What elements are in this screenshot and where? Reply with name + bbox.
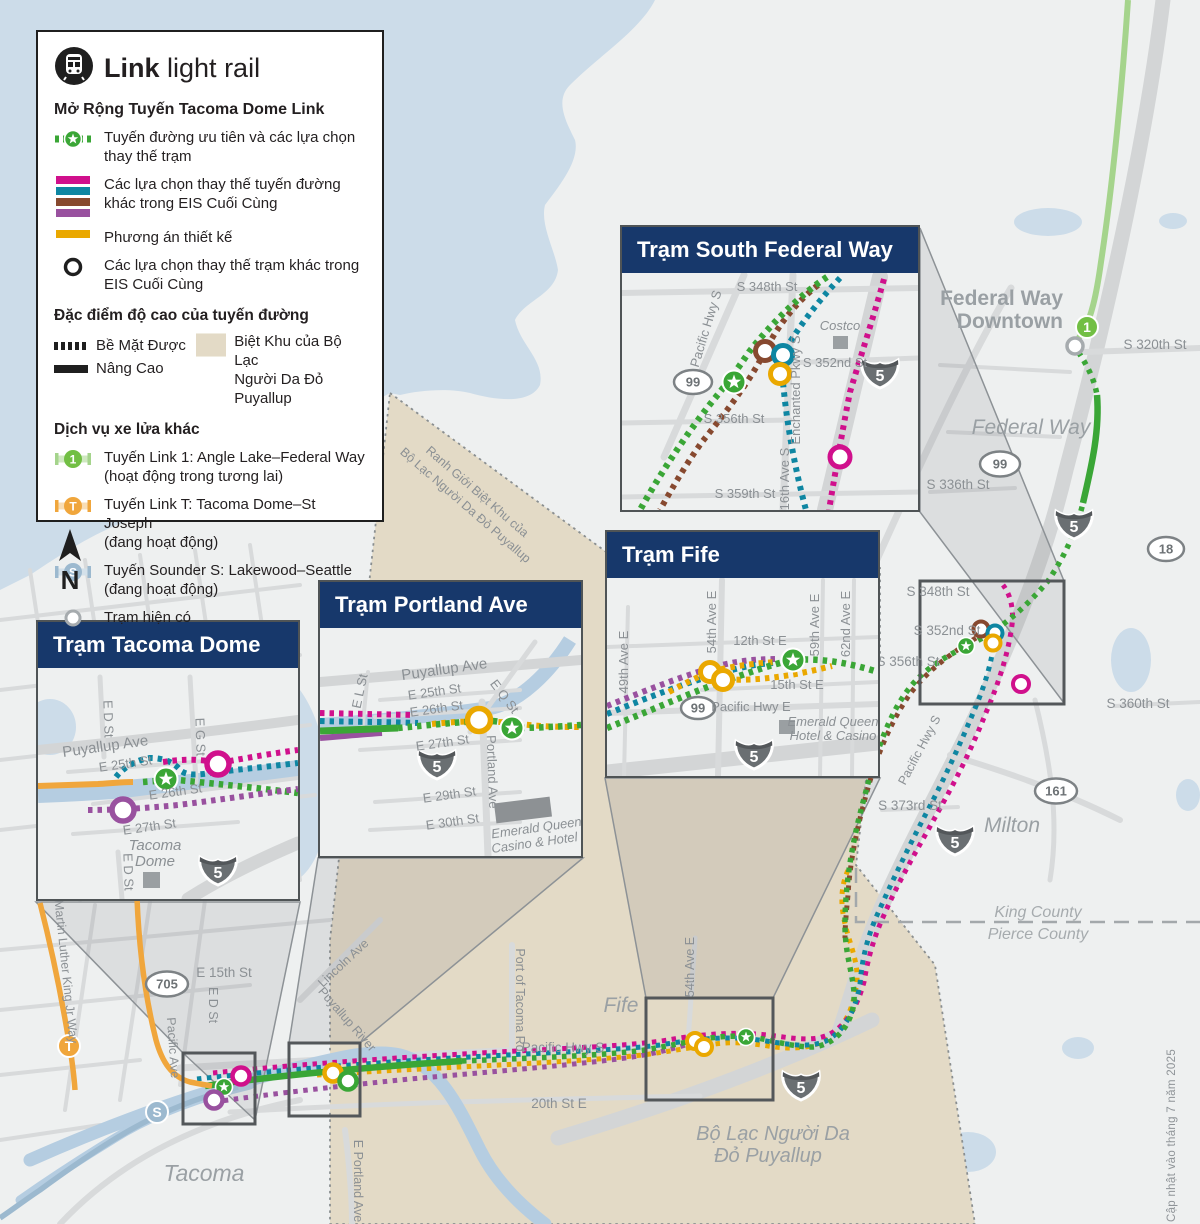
svg-text:S 320th St: S 320th St: [1123, 337, 1186, 352]
svg-text:S 352nd St: S 352nd St: [803, 355, 868, 370]
svg-text:E 27th St: E 27th St: [415, 731, 470, 753]
route-alternatives-icon: [54, 175, 92, 219]
svg-text:99: 99: [993, 457, 1007, 472]
i5-shield: 5: [937, 827, 974, 855]
svg-text:99: 99: [686, 375, 700, 390]
legend-item-station-alt: Các lựa chọn thay thế trạm khác trongEIS…: [54, 256, 368, 294]
legend-item-existing-station: Trạm hiện có: [54, 608, 368, 628]
inset-fife: 99 5 49th Ave E 54th Ave E 12th St E 59t…: [605, 530, 880, 778]
svg-text:Pacific Hwy E: Pacific Hwy E: [711, 699, 791, 714]
inset-tacoma-dome: 5 E D St Puyallup Ave E 25th St E G St E…: [36, 620, 300, 901]
svg-text:E D St: E D St: [120, 853, 136, 891]
svg-text:E G St: E G St: [192, 717, 208, 756]
svg-text:S 356th St: S 356th St: [704, 411, 765, 426]
svg-text:S 356th St: S 356th St: [876, 654, 939, 669]
svg-text:S 348th St: S 348th St: [737, 279, 798, 294]
svg-text:5: 5: [797, 1080, 806, 1097]
sounder-badge: S: [146, 1101, 168, 1123]
svg-text:Costco: Costco: [820, 318, 860, 333]
svg-text:161: 161: [1045, 784, 1067, 799]
link1-line-icon: 1: [54, 448, 92, 470]
svg-text:S 359th St: S 359th St: [715, 486, 776, 501]
svg-text:1: 1: [70, 453, 77, 467]
svg-text:Port of Tacoma Rd: Port of Tacoma Rd: [513, 948, 527, 1051]
svg-text:54th Ave E: 54th Ave E: [683, 937, 697, 997]
svg-text:Puyallup Ave: Puyallup Ave: [400, 655, 488, 684]
svg-text:Emerald Queen: Emerald Queen: [787, 714, 878, 729]
legend-item-preferred: Tuyến đường ưu tiên và các lựa chọnthay …: [54, 128, 368, 166]
us99-shield: 99: [980, 452, 1020, 477]
inset-title-bar: Trạm South Federal Way: [622, 227, 918, 273]
svg-text:99: 99: [691, 701, 705, 716]
svg-text:49th Ave E: 49th Ave E: [616, 630, 631, 693]
svg-text:20th St E: 20th St E: [531, 1096, 587, 1111]
i5-shield-label: 5: [1070, 519, 1079, 536]
svg-text:5: 5: [951, 835, 960, 852]
svg-text:705: 705: [156, 977, 178, 992]
legend-title: Link light rail: [104, 53, 260, 84]
svg-text:S 348th St: S 348th St: [906, 584, 969, 599]
legend-subtitle: Mở Rộng Tuyến Tacoma Dome Link: [54, 101, 368, 119]
svg-text:S 336th St: S 336th St: [926, 477, 989, 492]
inset-south-federal-way: 99 5 S 348th St Pacific Hwy S S 352nd St…: [620, 225, 920, 512]
label-fife: Fife: [603, 994, 638, 1017]
svg-text:18: 18: [1159, 542, 1173, 557]
svg-text:E Portland Ave: E Portland Ave: [351, 1140, 365, 1223]
label-federal-way: Federal Way: [972, 416, 1092, 439]
svg-text:15th St E: 15th St E: [770, 677, 824, 692]
svg-text:T: T: [69, 500, 77, 514]
svg-text:Hotel & Casino: Hotel & Casino: [790, 728, 877, 743]
preferred-route-icon: [54, 128, 92, 150]
legend-elevation-heading: Đặc điểm độ cao của tuyến đường: [54, 307, 368, 325]
label-tacoma: Tacoma: [164, 1160, 245, 1186]
map-credit: Cập nhật vào tháng 7 năm 2025: [1166, 1036, 1178, 1222]
svg-text:Bộ Lạc Người Da: Bộ Lạc Người Da: [696, 1123, 850, 1145]
svg-text:Pierce County: Pierce County: [988, 926, 1089, 943]
svg-text:Portland Ave: Portland Ave: [484, 735, 502, 809]
inset-title: Trạm South Federal Way: [637, 237, 893, 262]
svg-text:Pacific Hwy S: Pacific Hwy S: [522, 1040, 605, 1055]
svg-text:S 352nd St: S 352nd St: [914, 623, 981, 638]
svg-text:King County: King County: [994, 904, 1082, 921]
svg-text:Đỏ Puyallup: Đỏ Puyallup: [714, 1145, 822, 1167]
map-stage: 5 5 5 99 18 161 705 1 T S Federal Way Do…: [0, 0, 1200, 1224]
svg-text:5: 5: [214, 865, 223, 882]
inset-title: Trạm Fife: [622, 542, 720, 567]
legend-services-heading: Dịch vụ xe lửa khác: [54, 421, 368, 439]
svg-text:62nd Ave E: 62nd Ave E: [838, 591, 853, 658]
svg-text:Enchanted Pkwy S: Enchanted Pkwy S: [788, 335, 803, 444]
elevated-line-icon: [54, 365, 88, 373]
wa705-shield: 705: [146, 972, 188, 997]
svg-text:E D St: E D St: [206, 987, 220, 1024]
svg-text:S 373rd St: S 373rd St: [878, 798, 942, 813]
svg-text:Dome: Dome: [135, 853, 175, 870]
legend-panel: Link light rail Mở Rộng Tuyến Tacoma Dom…: [36, 30, 384, 522]
legend-item-link1: 1 Tuyến Link 1: Angle Lake–Federal Way(h…: [54, 448, 368, 486]
design-option-icon: [54, 228, 92, 240]
svg-text:S: S: [152, 1104, 161, 1120]
legend-item-alternatives: Các lựa chọn thay thế tuyến đườngkhác tr…: [54, 175, 368, 219]
north-arrow-icon: [55, 528, 85, 564]
i5-shield: 5: [1056, 511, 1093, 539]
north-label: N: [52, 565, 88, 596]
svg-text:Downtown: Downtown: [957, 310, 1063, 333]
svg-text:5: 5: [750, 749, 759, 766]
label-milton: Milton: [984, 814, 1040, 837]
svg-text:Pacific Hwy S: Pacific Hwy S: [895, 713, 943, 787]
legend-item-elevated: Nâng Cao: [54, 359, 186, 378]
reservation-swatch: [196, 332, 226, 358]
svg-text:E D St: E D St: [100, 700, 116, 738]
svg-text:E 29th St: E 29th St: [422, 783, 477, 805]
svg-text:5: 5: [876, 368, 885, 385]
legend-item-sounder: S Tuyến Sounder S: Lakewood–Seattle(đang…: [54, 561, 368, 599]
link-logo-icon: [54, 46, 94, 91]
existing-station-fwd: [1067, 338, 1083, 354]
legend-item-linkt: T Tuyến Link T: Tacoma Dome–St Joseph(đa…: [54, 495, 368, 552]
svg-text:1: 1: [1083, 319, 1091, 335]
svg-text:12th St E: 12th St E: [733, 633, 787, 648]
existing-station-icon: [54, 608, 92, 628]
legend-item-surface: Bề Mặt Được: [54, 336, 186, 355]
wa18-shield: 18: [1148, 537, 1184, 561]
station-alternative-icon: [54, 256, 92, 278]
link1-badge: 1: [1076, 316, 1098, 338]
svg-text:S 360th St: S 360th St: [1106, 696, 1169, 711]
inset-title: Trạm Tacoma Dome: [53, 632, 260, 657]
surface-line-icon: [54, 342, 88, 350]
inset-title-bar: Trạm Fife: [607, 532, 878, 578]
legend-item-reservation: Biệt Khu của Bộ LạcNgười Da Đỏ Puyallup: [196, 332, 368, 408]
svg-text:5: 5: [433, 759, 442, 776]
linkt-line-icon: T: [54, 495, 92, 517]
svg-text:E 30th St: E 30th St: [425, 810, 480, 832]
legend-item-design: Phương án thiết kế: [54, 228, 368, 247]
wa161-shield: 161: [1035, 779, 1077, 804]
inset-title-bar: Trạm Tacoma Dome: [38, 622, 298, 668]
svg-text:Tacoma: Tacoma: [129, 837, 182, 854]
svg-text:59th Ave E: 59th Ave E: [807, 593, 822, 656]
svg-text:E 15th St: E 15th St: [196, 965, 252, 980]
label-federal-way-downtown: Federal Way: [940, 287, 1063, 310]
svg-text:54th Ave E: 54th Ave E: [704, 590, 719, 653]
svg-text:Pacific Ave: Pacific Ave: [164, 1017, 182, 1079]
north-arrow: N: [52, 528, 88, 590]
svg-text:16th Ave S: 16th Ave S: [777, 447, 792, 510]
